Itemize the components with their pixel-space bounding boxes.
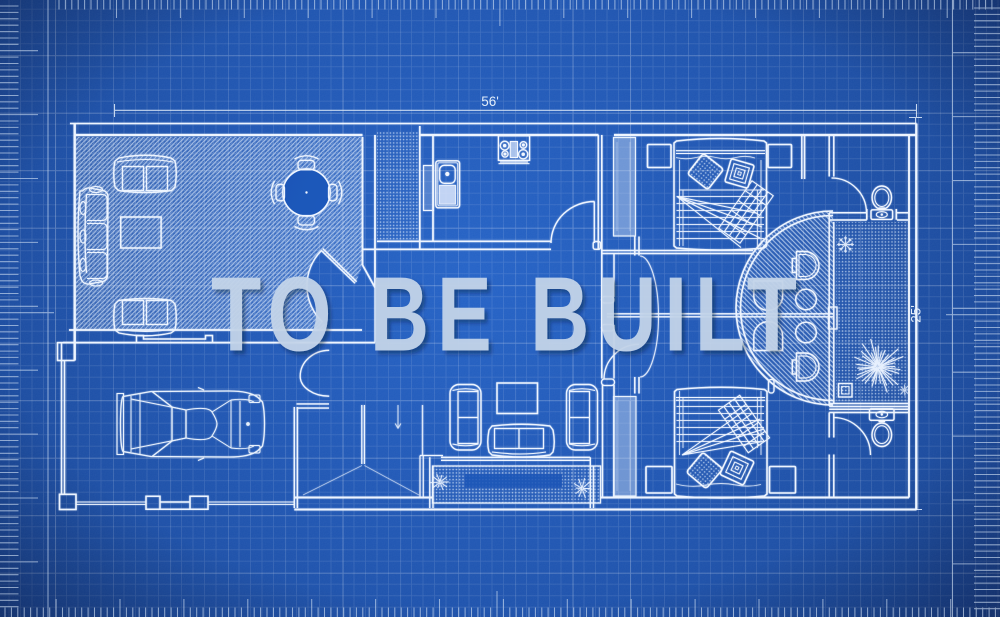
svg-text:TO BE BUILT: TO BE BUILT: [211, 256, 805, 374]
svg-text:56': 56': [481, 94, 499, 109]
